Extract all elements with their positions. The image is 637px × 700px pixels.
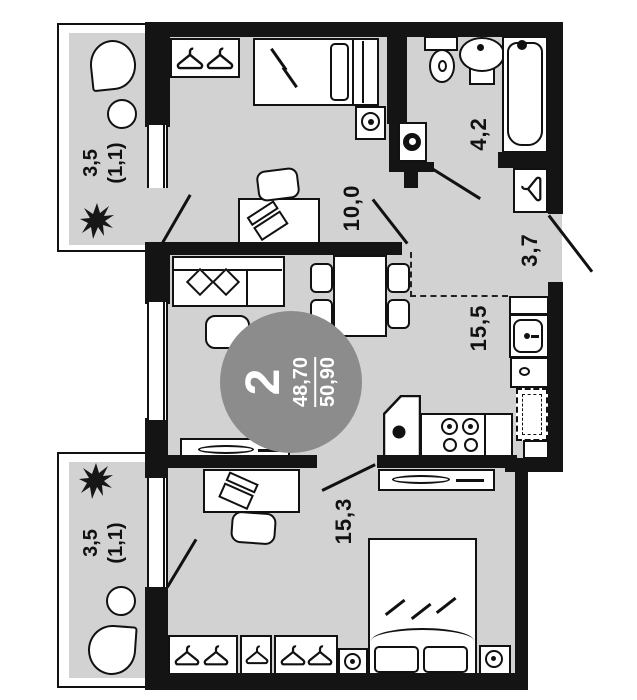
badge-rooms-count: 2 — [241, 357, 287, 407]
sink-faucet — [524, 333, 530, 339]
label-balcony-top-area: 3,5 (1,1) — [79, 142, 129, 183]
open-plan-dashed-boundary — [410, 295, 508, 297]
balcony-area-value: 3,5 — [79, 522, 104, 563]
kitchen-cabinet — [523, 440, 549, 459]
badge-content: 2 48,70 50,90 — [241, 357, 341, 407]
wall — [145, 22, 170, 127]
desk-chair — [255, 167, 300, 203]
label-bathroom-area: 4,2 — [466, 117, 492, 151]
burner-dot — [447, 424, 452, 429]
headboard-line — [362, 41, 364, 103]
pillow — [330, 43, 349, 101]
wall — [389, 120, 398, 164]
hanger-icon — [174, 644, 200, 666]
bathtub-faucet — [517, 40, 527, 50]
cabinet-knob — [519, 367, 530, 376]
label-living-kitchen-area: 15,5 — [466, 305, 492, 352]
balcony-area-reduced: (1,1) — [104, 142, 129, 183]
wall — [548, 22, 563, 214]
wall — [145, 455, 317, 468]
floor-plan: 10,0 4,2 3,7 15,5 15,3 3,5 (1,1) 3,5 (1,… — [0, 0, 637, 700]
tv-icon — [392, 475, 450, 484]
sofa-divider — [246, 269, 248, 305]
wall — [548, 282, 563, 472]
pillow — [423, 646, 468, 673]
kitchen-cabinet — [509, 296, 549, 315]
hanger-icon — [245, 644, 269, 665]
burner-dot — [468, 424, 473, 429]
wall — [145, 242, 402, 255]
balcony-area-value: 3,5 — [79, 142, 104, 183]
headboard — [352, 38, 379, 106]
badge-total-area: 50,90 — [314, 357, 341, 407]
wall — [145, 673, 528, 690]
apartment-summary-badge: 2 48,70 50,90 — [220, 311, 362, 453]
hanger-icon — [176, 46, 204, 70]
label-balcony-bottom-area: 3,5 (1,1) — [79, 522, 129, 563]
dining-table — [333, 255, 387, 337]
window — [147, 302, 168, 420]
lamp-dot — [368, 119, 374, 125]
hanger-icon — [307, 644, 333, 666]
badge-living-area: 48,70 — [289, 357, 314, 407]
sink-faucet-line — [531, 335, 539, 338]
toilet-drain — [438, 60, 447, 72]
label-hallway-area: 3,7 — [517, 233, 543, 267]
wall — [498, 152, 550, 168]
sideboard-handle — [198, 445, 254, 454]
hanger-icon — [206, 46, 234, 70]
stove-burner — [464, 438, 478, 452]
wall — [145, 418, 168, 478]
wall — [404, 172, 418, 188]
balcony-area-reduced: (1,1) — [104, 522, 129, 563]
wall — [387, 22, 407, 124]
stove-burner — [443, 438, 457, 452]
hanger-icon — [203, 644, 229, 666]
open-plan-dashed-boundary — [410, 252, 412, 297]
badge-areas: 48,70 50,90 — [289, 357, 341, 407]
hanger-icon — [520, 176, 542, 202]
speaker-dot — [491, 656, 496, 661]
round-table — [107, 99, 137, 129]
label-bedroom-top-area: 10,0 — [339, 185, 365, 232]
tv-stand-line — [456, 479, 484, 482]
wall — [389, 162, 434, 172]
plant-icon — [79, 202, 115, 240]
speaker-dot — [350, 659, 355, 664]
window — [147, 478, 168, 587]
desk-chair — [230, 510, 277, 545]
window — [147, 125, 168, 188]
plant-icon — [78, 462, 114, 500]
counter-divider — [484, 415, 486, 455]
washbasin-faucet — [477, 44, 484, 51]
label-bedroom-bottom-area: 15,3 — [331, 498, 357, 545]
washbasin — [459, 37, 505, 72]
dining-chair — [387, 299, 410, 329]
bathtub-inner — [507, 42, 543, 146]
washing-machine-door — [409, 138, 416, 145]
fridge-inner — [522, 394, 542, 435]
wall — [145, 22, 563, 37]
wall — [145, 587, 168, 677]
round-table — [106, 586, 136, 616]
wall — [377, 455, 517, 468]
wall — [515, 472, 528, 677]
dining-chair — [387, 263, 410, 293]
hanger-icon — [280, 644, 306, 666]
dining-chair — [310, 263, 333, 293]
corner-sink — [383, 395, 421, 458]
pillow — [374, 646, 419, 673]
